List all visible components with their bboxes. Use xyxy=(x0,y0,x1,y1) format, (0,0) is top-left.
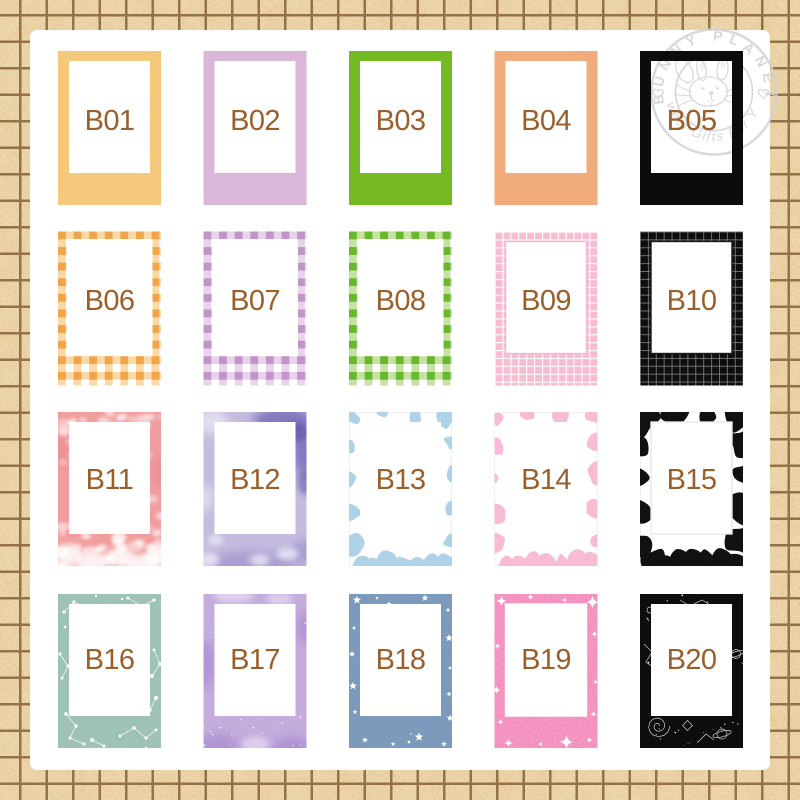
svg-text:B05: B05 xyxy=(667,105,717,137)
svg-text:B06: B06 xyxy=(85,285,135,317)
svg-text:B11: B11 xyxy=(86,464,134,496)
svg-text:B04: B04 xyxy=(521,105,571,137)
svg-text:B09: B09 xyxy=(521,285,571,317)
svg-text:B14: B14 xyxy=(521,464,571,496)
svg-text:B15: B15 xyxy=(667,464,717,496)
svg-text:B03: B03 xyxy=(376,105,426,137)
svg-text:B18: B18 xyxy=(376,644,426,676)
svg-text:B16: B16 xyxy=(85,644,135,676)
svg-text:B13: B13 xyxy=(376,464,426,496)
svg-text:B10: B10 xyxy=(667,285,717,317)
svg-text:B07: B07 xyxy=(230,285,280,317)
svg-text:B20: B20 xyxy=(667,644,717,676)
svg-text:B17: B17 xyxy=(230,644,280,676)
svg-text:B02: B02 xyxy=(230,105,280,137)
svg-text:B12: B12 xyxy=(230,464,280,496)
svg-text:B19: B19 xyxy=(521,644,571,676)
svg-text:B01: B01 xyxy=(85,105,135,137)
svg-text:B08: B08 xyxy=(376,285,426,317)
